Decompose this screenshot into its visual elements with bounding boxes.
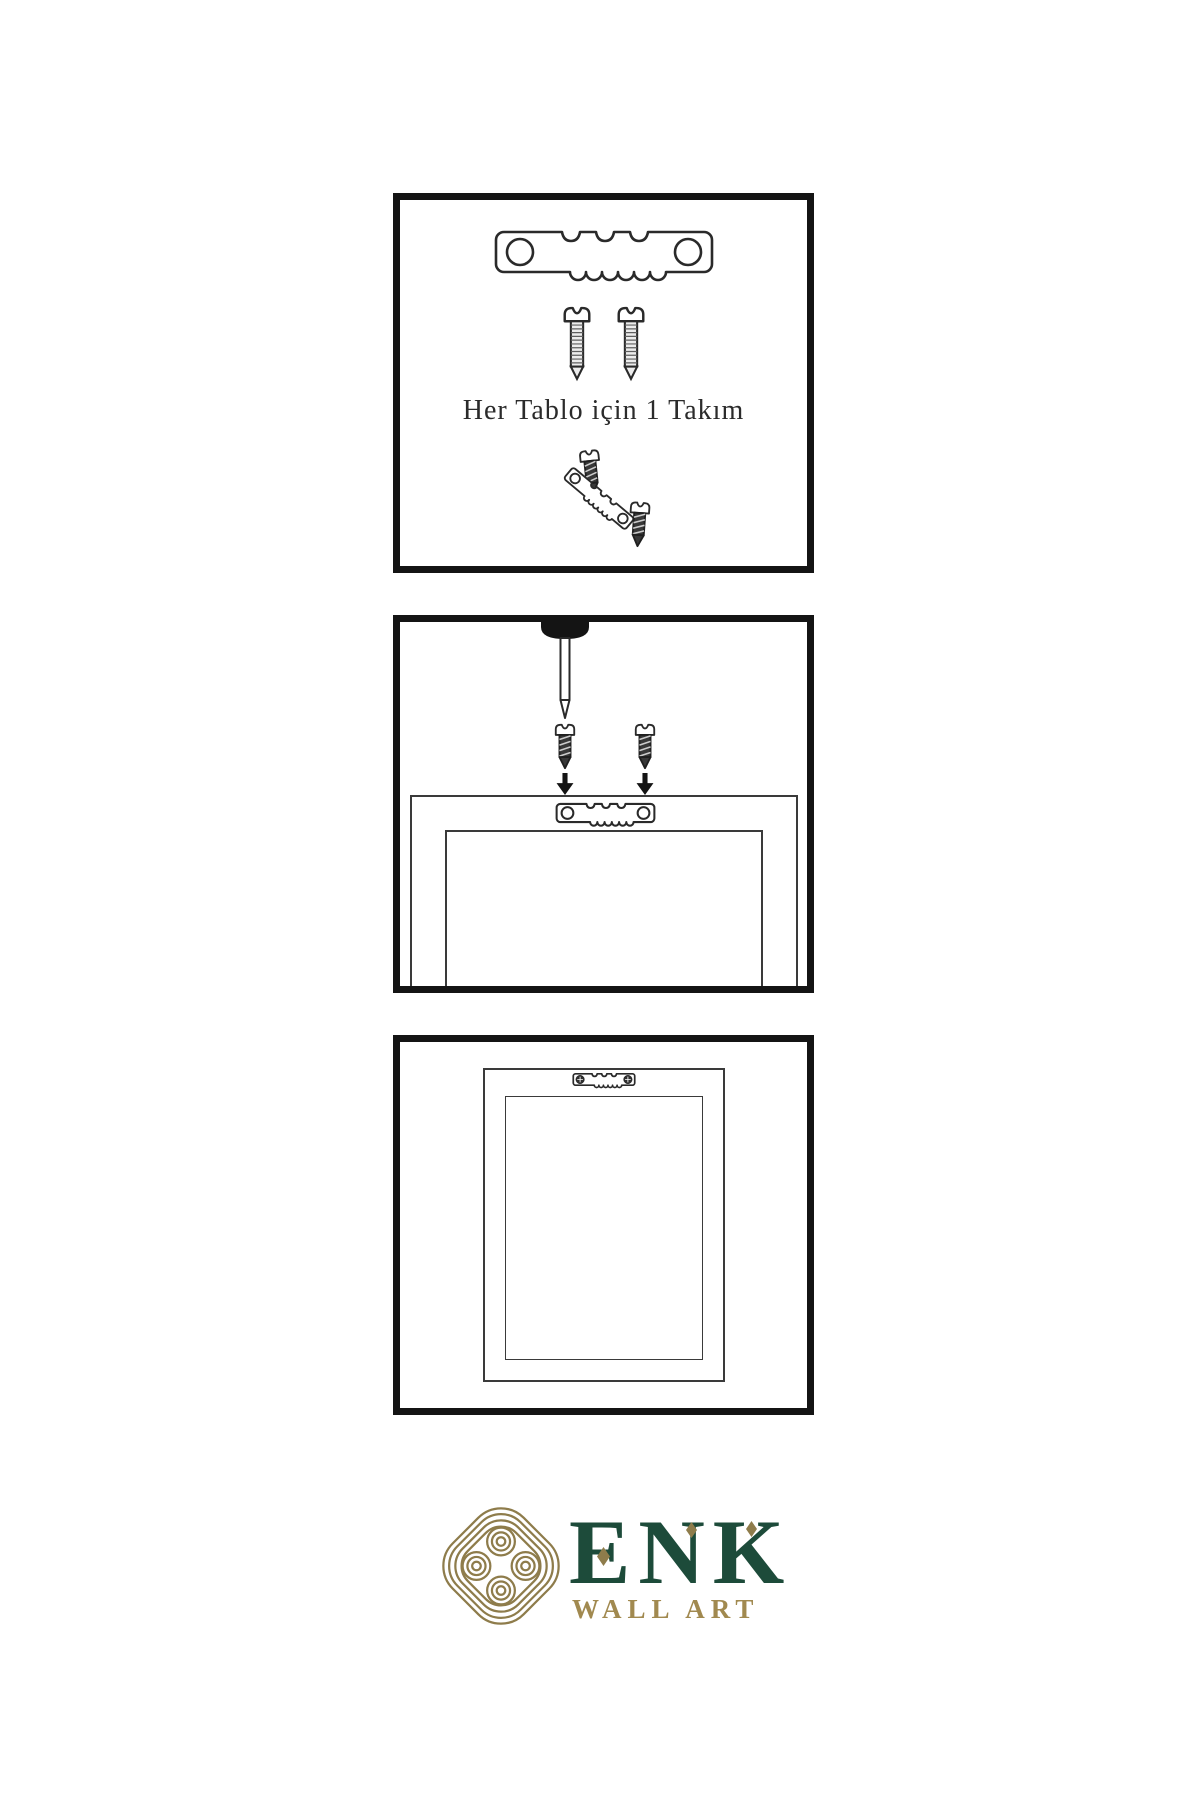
diamond-ornament	[746, 1521, 757, 1537]
instruction-sheet: Her Tablo için 1 Takım	[0, 0, 1200, 1800]
sawtooth-hanger-illustration	[553, 800, 658, 826]
brand-name: ENK	[569, 1506, 792, 1598]
screw-illustration	[624, 499, 653, 549]
installed-hanger-illustration	[571, 1070, 637, 1089]
screw-illustration	[614, 304, 648, 382]
sawtooth-hanger-illustration	[488, 224, 720, 280]
panel-installation-step	[393, 615, 814, 993]
frame-back-inner-outline	[505, 1096, 703, 1360]
down-arrow-icon	[635, 773, 655, 795]
diamond-ornament	[597, 1547, 610, 1566]
hanger-assembly-illustration	[560, 448, 670, 560]
panel-kit-contents: Her Tablo için 1 Takım	[393, 193, 814, 573]
kit-caption: Her Tablo için 1 Takım	[400, 395, 807, 427]
brand-tagline: WALL ART	[572, 1596, 759, 1623]
screw-illustration	[551, 722, 579, 770]
knot-logo-icon	[437, 1501, 565, 1631]
down-arrow-icon	[555, 773, 575, 795]
screw-illustration	[560, 304, 594, 382]
screw-illustration	[631, 722, 659, 770]
frame-back-inner-outline	[445, 830, 763, 986]
wall-nail-illustration	[541, 622, 589, 722]
panel-hanger-installed	[393, 1035, 814, 1415]
diamond-ornament	[686, 1522, 697, 1538]
